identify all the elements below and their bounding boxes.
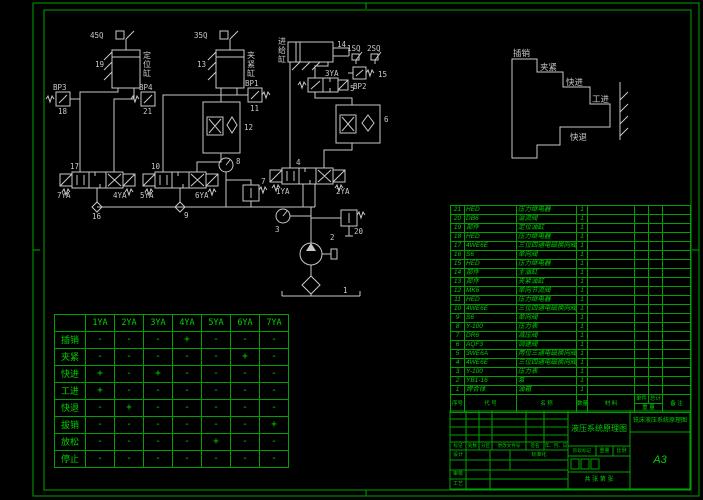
part-total-weight bbox=[649, 287, 663, 296]
part-remark bbox=[663, 323, 691, 332]
solenoid-state-cell: - bbox=[115, 366, 144, 383]
part-unit-weight bbox=[635, 305, 649, 314]
part-qty: 1 bbox=[577, 314, 588, 323]
part-name: 调速阀 bbox=[517, 341, 577, 350]
solenoid-state-cell: - bbox=[144, 451, 173, 468]
part-unit-weight bbox=[635, 233, 649, 242]
part-material bbox=[588, 269, 635, 278]
solenoid-state-cell: - bbox=[144, 349, 173, 366]
schematic-label: 3YA bbox=[325, 69, 339, 78]
solenoid-state-cell: - bbox=[260, 400, 289, 417]
solenoid-state-cell: - bbox=[115, 383, 144, 400]
part-code: 部件 bbox=[465, 278, 517, 287]
schematic-label: 7YA bbox=[57, 191, 71, 200]
part-code: HED bbox=[465, 296, 517, 305]
step-name-cell: 插销 bbox=[55, 332, 86, 349]
schematic-label: 6 bbox=[384, 115, 389, 124]
step-name-cell: 放松 bbox=[55, 434, 86, 451]
part-unit-weight bbox=[635, 359, 649, 368]
part-qty: 1 bbox=[577, 269, 588, 278]
part-unit-weight bbox=[635, 350, 649, 359]
solenoid-sequence-table: 1YA2YA3YA4YA5YA6YA7YA插销---+---夹紧-----+-快… bbox=[54, 314, 289, 468]
schematic-label: 进给缸 bbox=[278, 37, 286, 64]
col-remark: 备 注 bbox=[663, 395, 691, 413]
schematic-label: 13 bbox=[197, 60, 206, 69]
solenoid-state-cell: - bbox=[115, 451, 144, 468]
solenoid-col-header: 3YA bbox=[144, 315, 173, 332]
col-total: 总计 bbox=[649, 395, 663, 404]
part-code: Y-100 bbox=[465, 323, 517, 332]
schematic-label: 16 bbox=[92, 212, 102, 221]
cad-drawing-canvas: 45Q35Q1913定位缸夹紧缸进给缸14BP318BP421BP111121S… bbox=[0, 0, 703, 500]
schematic-label: 45Q bbox=[90, 31, 104, 40]
solenoid-state-cell: + bbox=[86, 383, 115, 400]
solenoid-state-cell: - bbox=[86, 400, 115, 417]
revision-col-label: 年、月、日 bbox=[544, 442, 568, 450]
project-title: 铣床液压系统原理图 bbox=[630, 411, 690, 432]
part-code: 4WE6E bbox=[465, 242, 517, 251]
solenoid-state-cell: - bbox=[173, 417, 202, 434]
part-code: 3WE6A bbox=[465, 350, 517, 359]
part-no: 16 bbox=[451, 251, 465, 260]
schematic-label: BP1 bbox=[245, 79, 259, 88]
step-name-cell: 拔销 bbox=[55, 417, 86, 434]
solenoid-state-cell: - bbox=[202, 366, 231, 383]
part-qty: 1 bbox=[577, 215, 588, 224]
part-name: 压力表 bbox=[517, 368, 577, 377]
schematic-label: BP4 bbox=[139, 83, 153, 92]
part-material bbox=[588, 278, 635, 287]
part-no: 18 bbox=[451, 233, 465, 242]
solenoid-state-cell: + bbox=[115, 400, 144, 417]
scale-label: 比例 bbox=[613, 446, 630, 456]
part-remark bbox=[663, 296, 691, 305]
part-no: 9 bbox=[451, 314, 465, 323]
part-name: 压力继电器 bbox=[517, 233, 577, 242]
solenoid-state-cell: - bbox=[260, 434, 289, 451]
part-name: 单向阀 bbox=[517, 251, 577, 260]
solenoid-state-cell: - bbox=[202, 400, 231, 417]
part-no: 15 bbox=[451, 260, 465, 269]
solenoid-state-cell: - bbox=[144, 332, 173, 349]
part-unit-weight bbox=[635, 323, 649, 332]
part-unit-weight bbox=[635, 206, 649, 215]
schematic-label: 4YA bbox=[113, 191, 127, 200]
part-total-weight bbox=[649, 332, 663, 341]
part-no: 17 bbox=[451, 242, 465, 251]
part-material bbox=[588, 314, 635, 323]
part-unit-weight bbox=[635, 251, 649, 260]
col-qty: 数量 bbox=[577, 395, 588, 413]
part-no: 8 bbox=[451, 323, 465, 332]
solenoid-state-cell: + bbox=[260, 417, 289, 434]
part-total-weight bbox=[649, 278, 663, 287]
schematic-label: 20 bbox=[354, 227, 364, 236]
part-remark bbox=[663, 206, 691, 215]
schematic-label: BP2 bbox=[353, 82, 367, 91]
part-material bbox=[588, 305, 635, 314]
col-unit: 单件 bbox=[635, 395, 649, 404]
part-qty: 1 bbox=[577, 206, 588, 215]
schematic-label: 14 bbox=[337, 40, 347, 49]
solenoid-col-header: 6YA bbox=[231, 315, 260, 332]
part-code: YB1-16 bbox=[465, 377, 517, 386]
schematic-label: 11 bbox=[250, 104, 259, 113]
part-name: 三位四通电磁换向阀 bbox=[517, 359, 577, 368]
solenoid-state-cell: - bbox=[86, 332, 115, 349]
schematic-label: 35Q bbox=[194, 31, 208, 40]
part-total-weight bbox=[649, 350, 663, 359]
schematic-label: 1SQ bbox=[347, 44, 361, 53]
part-total-weight bbox=[649, 269, 663, 278]
solenoid-state-cell: + bbox=[173, 332, 202, 349]
solenoid-state-cell: - bbox=[144, 383, 173, 400]
part-material bbox=[588, 323, 635, 332]
solenoid-state-cell: - bbox=[115, 349, 144, 366]
solenoid-state-cell: + bbox=[144, 366, 173, 383]
schematic-label: 2YA bbox=[336, 187, 350, 196]
part-code: S6 bbox=[465, 314, 517, 323]
col-code: 代 号 bbox=[465, 395, 517, 413]
schematic-label: 工进 bbox=[592, 94, 610, 104]
part-name: 三位四通电磁换向阀 bbox=[517, 305, 577, 314]
part-remark bbox=[663, 332, 691, 341]
part-remark bbox=[663, 359, 691, 368]
part-unit-weight bbox=[635, 296, 649, 305]
schematic-label: 夹紧缸 bbox=[247, 50, 255, 78]
part-name: 夹紧油缸 bbox=[517, 278, 577, 287]
stage-mark-label: 阶段标记 bbox=[568, 446, 596, 456]
part-qty: 1 bbox=[577, 287, 588, 296]
solenoid-state-cell: - bbox=[202, 332, 231, 349]
solenoid-state-cell: - bbox=[260, 383, 289, 400]
part-qty: 1 bbox=[577, 305, 588, 314]
solenoid-state-cell: - bbox=[86, 349, 115, 366]
part-material bbox=[588, 350, 635, 359]
schematic-label: 1YA bbox=[276, 187, 290, 196]
solenoid-state-cell: - bbox=[231, 417, 260, 434]
solenoid-state-cell: - bbox=[202, 417, 231, 434]
solenoid-state-cell: - bbox=[115, 434, 144, 451]
part-qty: 1 bbox=[577, 377, 588, 386]
part-remark bbox=[663, 251, 691, 260]
process-label: 工艺 bbox=[450, 479, 466, 489]
part-material bbox=[588, 224, 635, 233]
solenoid-state-cell: - bbox=[173, 349, 202, 366]
part-no: 21 bbox=[451, 206, 465, 215]
part-name: 压力继电器 bbox=[517, 296, 577, 305]
part-total-weight bbox=[649, 377, 663, 386]
schematic-label: 4 bbox=[296, 158, 301, 167]
design-label: 设计 bbox=[450, 450, 466, 460]
part-remark bbox=[663, 278, 691, 287]
part-remark bbox=[663, 377, 691, 386]
part-name: 三位四通电磁换向阀 bbox=[517, 242, 577, 251]
col-material: 材 料 bbox=[588, 395, 635, 413]
solenoid-state-cell: - bbox=[260, 332, 289, 349]
part-no: 13 bbox=[451, 278, 465, 287]
schematic-label: 快退 bbox=[570, 132, 588, 142]
schematic-label: 3 bbox=[275, 225, 280, 234]
part-no: 20 bbox=[451, 215, 465, 224]
solenoid-state-cell: - bbox=[173, 383, 202, 400]
part-name: 压力继电器 bbox=[517, 260, 577, 269]
part-unit-weight bbox=[635, 215, 649, 224]
part-name: 主油缸 bbox=[517, 269, 577, 278]
part-no: 14 bbox=[451, 269, 465, 278]
schematic-label: 快进 bbox=[566, 77, 584, 87]
schematic-label: 15 bbox=[378, 70, 387, 79]
part-qty: 1 bbox=[577, 368, 588, 377]
part-material bbox=[588, 287, 635, 296]
part-name: 压力继电器 bbox=[517, 206, 577, 215]
schematic-label: 5YA bbox=[140, 191, 154, 200]
part-qty: 1 bbox=[577, 332, 588, 341]
part-total-weight bbox=[649, 341, 663, 350]
schematic-label: 7 bbox=[261, 177, 266, 186]
part-total-weight bbox=[649, 296, 663, 305]
schematic-label: 21 bbox=[143, 107, 152, 116]
revision-col-label: 签名 bbox=[526, 442, 544, 450]
part-remark bbox=[663, 215, 691, 224]
part-total-weight bbox=[649, 305, 663, 314]
part-qty: 1 bbox=[577, 251, 588, 260]
part-no: 4 bbox=[451, 359, 465, 368]
schematic-label: 定位缸 bbox=[143, 50, 151, 78]
part-unit-weight bbox=[635, 368, 649, 377]
solenoid-state-cell: - bbox=[86, 434, 115, 451]
part-qty: 1 bbox=[577, 359, 588, 368]
part-remark bbox=[663, 269, 691, 278]
part-unit-weight bbox=[635, 224, 649, 233]
solenoid-state-cell: - bbox=[231, 400, 260, 417]
schematic-label: 8 bbox=[236, 157, 241, 166]
solenoid-state-cell: - bbox=[173, 451, 202, 468]
part-unit-weight bbox=[635, 377, 649, 386]
solenoid-state-cell: - bbox=[260, 366, 289, 383]
solenoid-state-cell: - bbox=[173, 400, 202, 417]
part-no: 2 bbox=[451, 377, 465, 386]
schematic-label: 18 bbox=[58, 107, 68, 116]
part-no: 3 bbox=[451, 368, 465, 377]
solenoid-state-cell: - bbox=[115, 417, 144, 434]
part-code: MK6 bbox=[465, 287, 517, 296]
part-qty: 1 bbox=[577, 278, 588, 287]
part-code: DR6 bbox=[465, 332, 517, 341]
part-name: 定位油缸 bbox=[517, 224, 577, 233]
part-total-weight bbox=[649, 359, 663, 368]
part-total-weight bbox=[649, 206, 663, 215]
solenoid-state-cell: - bbox=[144, 434, 173, 451]
part-unit-weight bbox=[635, 242, 649, 251]
solenoid-state-cell: - bbox=[115, 332, 144, 349]
part-no: 6 bbox=[451, 341, 465, 350]
part-no: 19 bbox=[451, 224, 465, 233]
solenoid-state-cell: - bbox=[231, 383, 260, 400]
part-qty: 1 bbox=[577, 242, 588, 251]
part-material bbox=[588, 332, 635, 341]
schematic-label: 17 bbox=[70, 162, 79, 171]
part-no: 5 bbox=[451, 350, 465, 359]
part-name: 减压阀 bbox=[517, 332, 577, 341]
revision-col-label: 更改文件号 bbox=[492, 442, 526, 450]
part-remark bbox=[663, 224, 691, 233]
part-material bbox=[588, 359, 635, 368]
part-qty: 1 bbox=[577, 224, 588, 233]
solenoid-state-cell: - bbox=[231, 366, 260, 383]
part-remark bbox=[663, 233, 691, 242]
part-total-weight bbox=[649, 260, 663, 269]
solenoid-state-cell: - bbox=[144, 400, 173, 417]
part-code: 部件 bbox=[465, 224, 517, 233]
part-remark bbox=[663, 314, 691, 323]
weight-label: 重量 bbox=[596, 446, 613, 456]
step-name-cell: 快退 bbox=[55, 400, 86, 417]
solenoid-col-header: 2YA bbox=[115, 315, 144, 332]
part-qty: 1 bbox=[577, 260, 588, 269]
step-name-cell: 夹紧 bbox=[55, 349, 86, 366]
schematic-label: BP3 bbox=[53, 83, 67, 92]
part-material bbox=[588, 377, 635, 386]
part-unit-weight bbox=[635, 269, 649, 278]
schematic-label: 19 bbox=[95, 60, 104, 69]
part-remark bbox=[663, 287, 691, 296]
part-code: HED bbox=[465, 206, 517, 215]
sheet-size: A3 bbox=[630, 432, 690, 489]
solenoid-state-cell: - bbox=[173, 434, 202, 451]
part-code: AQF3 bbox=[465, 341, 517, 350]
part-remark bbox=[663, 368, 691, 377]
part-unit-weight bbox=[635, 278, 649, 287]
part-remark bbox=[663, 350, 691, 359]
part-total-weight bbox=[649, 251, 663, 260]
part-name: 单向节流阀 bbox=[517, 287, 577, 296]
part-code: DB6 bbox=[465, 215, 517, 224]
part-no: 10 bbox=[451, 305, 465, 314]
part-unit-weight bbox=[635, 260, 649, 269]
part-total-weight bbox=[649, 233, 663, 242]
solenoid-col-header: 7YA bbox=[260, 315, 289, 332]
work-cycle-diagram bbox=[512, 59, 628, 158]
part-name: 单向阀 bbox=[517, 314, 577, 323]
part-unit-weight bbox=[635, 314, 649, 323]
revision-col-label: 标记 bbox=[450, 442, 466, 450]
part-unit-weight bbox=[635, 287, 649, 296]
part-no: 12 bbox=[451, 287, 465, 296]
part-remark bbox=[663, 305, 691, 314]
revision-col-label: 分区 bbox=[479, 442, 492, 450]
schematic-label: 9 bbox=[184, 211, 189, 220]
parts-list-table: 21HED压力继电器120DB6溢流阀119部件定位油缸118HED压力继电器1… bbox=[450, 205, 691, 395]
part-total-weight bbox=[649, 314, 663, 323]
corner-cell bbox=[55, 315, 86, 332]
part-qty: 1 bbox=[577, 350, 588, 359]
col-no: 序号 bbox=[451, 395, 465, 413]
schematic-label: 2 bbox=[330, 233, 335, 242]
solenoid-state-cell: - bbox=[202, 383, 231, 400]
part-name: 压力表 bbox=[517, 323, 577, 332]
check-label: 审核 bbox=[450, 470, 466, 479]
schematic-label: 5 bbox=[350, 84, 355, 93]
part-unit-weight bbox=[635, 341, 649, 350]
solenoid-col-header: 1YA bbox=[86, 315, 115, 332]
part-no: 7 bbox=[451, 332, 465, 341]
solenoid-state-cell: - bbox=[144, 417, 173, 434]
part-material bbox=[588, 215, 635, 224]
part-code: Y-100 bbox=[465, 368, 517, 377]
part-code: 4WE6E bbox=[465, 305, 517, 314]
part-unit-weight bbox=[635, 332, 649, 341]
part-total-weight bbox=[649, 242, 663, 251]
step-name-cell: 停止 bbox=[55, 451, 86, 468]
solenoid-state-cell: - bbox=[260, 451, 289, 468]
part-total-weight bbox=[649, 215, 663, 224]
part-code: HED bbox=[465, 260, 517, 269]
part-material bbox=[588, 368, 635, 377]
solenoid-state-cell: - bbox=[231, 434, 260, 451]
part-material bbox=[588, 296, 635, 305]
part-material bbox=[588, 260, 635, 269]
solenoid-state-cell: + bbox=[86, 366, 115, 383]
part-material bbox=[588, 242, 635, 251]
part-material bbox=[588, 341, 635, 350]
col-name: 名 称 bbox=[517, 395, 577, 413]
solenoid-col-header: 4YA bbox=[173, 315, 202, 332]
part-code: S6 bbox=[465, 251, 517, 260]
part-total-weight bbox=[649, 224, 663, 233]
solenoid-col-header: 5YA bbox=[202, 315, 231, 332]
part-total-weight bbox=[649, 368, 663, 377]
schematic-label: 10 bbox=[151, 162, 161, 171]
part-name: 泵 bbox=[517, 377, 577, 386]
part-qty: 1 bbox=[577, 233, 588, 242]
schematic-label: 12 bbox=[244, 123, 253, 132]
cycle-labels: 插销夹紧快进工进快退 bbox=[513, 48, 610, 142]
part-material bbox=[588, 251, 635, 260]
schematic-label: 插销 bbox=[513, 48, 531, 58]
schematic-label: 2SQ bbox=[367, 44, 381, 53]
part-material bbox=[588, 206, 635, 215]
part-name: 两位三通电磁换向阀 bbox=[517, 350, 577, 359]
solenoid-state-cell: - bbox=[202, 451, 231, 468]
part-total-weight bbox=[649, 323, 663, 332]
solenoid-state-cell: - bbox=[231, 451, 260, 468]
part-qty: 1 bbox=[577, 323, 588, 332]
part-no: 11 bbox=[451, 296, 465, 305]
part-code: 部件 bbox=[465, 269, 517, 278]
schematic-labels: 45Q35Q1913定位缸夹紧缸进给缸14BP318BP421BP111121S… bbox=[53, 31, 389, 295]
solenoid-state-cell: - bbox=[86, 451, 115, 468]
part-remark bbox=[663, 260, 691, 269]
part-qty: 1 bbox=[577, 296, 588, 305]
part-code: 4WE6E bbox=[465, 359, 517, 368]
part-remark bbox=[663, 341, 691, 350]
solenoid-state-cell: - bbox=[202, 349, 231, 366]
revision-col-label: 处数 bbox=[466, 442, 479, 450]
solenoid-state-cell: - bbox=[260, 349, 289, 366]
sheet-count-label: 共 张 第 张 bbox=[568, 472, 630, 489]
solenoid-state-cell: - bbox=[173, 366, 202, 383]
schematic-label: 夹紧 bbox=[540, 62, 557, 72]
standardization-label: 标准化 bbox=[510, 450, 568, 460]
part-code: HED bbox=[465, 233, 517, 242]
step-name-cell: 快进 bbox=[55, 366, 86, 383]
part-remark bbox=[663, 242, 691, 251]
solenoid-state-cell: - bbox=[231, 332, 260, 349]
part-name: 溢流阀 bbox=[517, 215, 577, 224]
drawing-title: 液压系统原理图 bbox=[568, 411, 630, 446]
part-material bbox=[588, 233, 635, 242]
